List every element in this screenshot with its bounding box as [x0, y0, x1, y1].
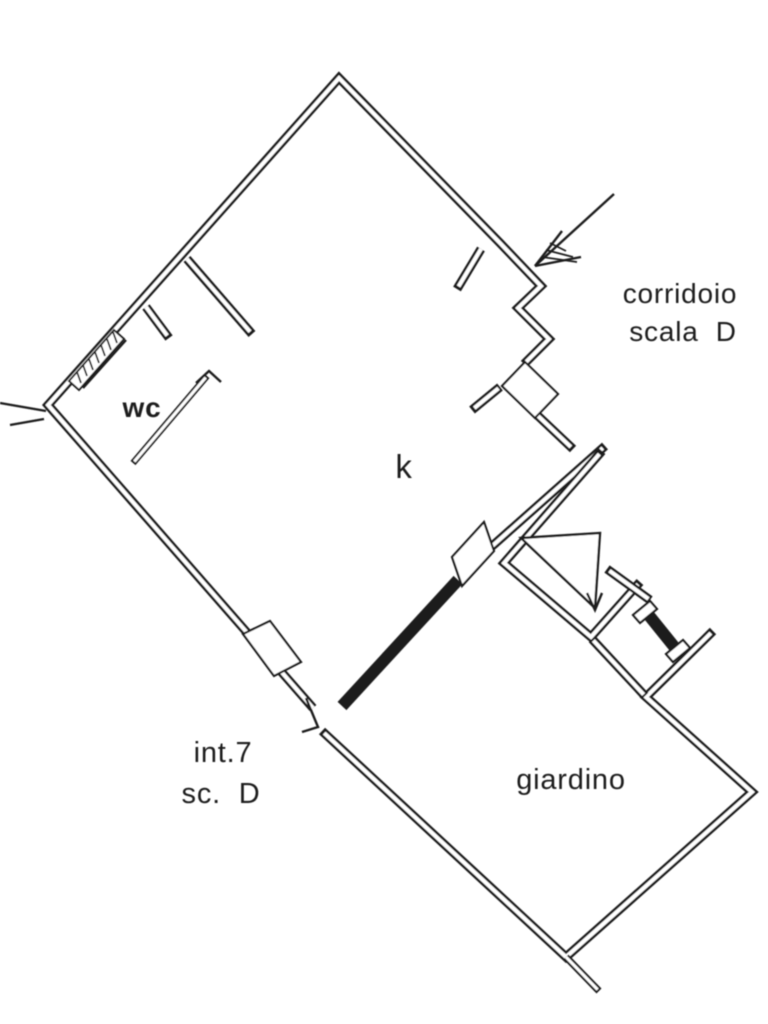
label-wc: wc — [122, 392, 162, 423]
giardino-corner-tick-core — [566, 957, 598, 990]
label-giardino: giardino — [516, 764, 626, 796]
label-corridoio: corridoio — [623, 278, 738, 309]
floorplan-drawing: corridoioscala Dwckint.7sc. Dgiardino — [0, 78, 752, 991]
left-corner-tick-a — [0, 403, 46, 411]
entry-door-panel — [502, 362, 558, 418]
label-scala-d: scala D — [629, 316, 737, 347]
sw-door-block — [243, 621, 301, 676]
floorplan: corridoioscala Dwckint.7sc. Dgiardino — [0, 0, 768, 1024]
label-sc-d: sc. D — [182, 778, 261, 810]
label-k: k — [395, 448, 412, 485]
label-int7: int.7 — [194, 737, 253, 769]
floorplan-svg: corridoioscala Dwckint.7sc. Dgiardino — [0, 0, 768, 1024]
se-door-block — [452, 522, 494, 586]
se-hatched-wall — [342, 580, 458, 706]
landing-wall-core — [537, 415, 570, 447]
wc-partition-wall-core — [187, 259, 250, 332]
entry-arrow-shaft — [535, 194, 614, 266]
entry-jamb-stub-core — [459, 249, 481, 286]
wc-jamb-stub-core — [146, 307, 167, 336]
giardino-gate-bar — [647, 613, 676, 649]
left-corner-tick-b — [10, 419, 44, 425]
giardino-top-wall-core — [593, 640, 643, 694]
entry-inner-jamb-core — [474, 388, 498, 408]
